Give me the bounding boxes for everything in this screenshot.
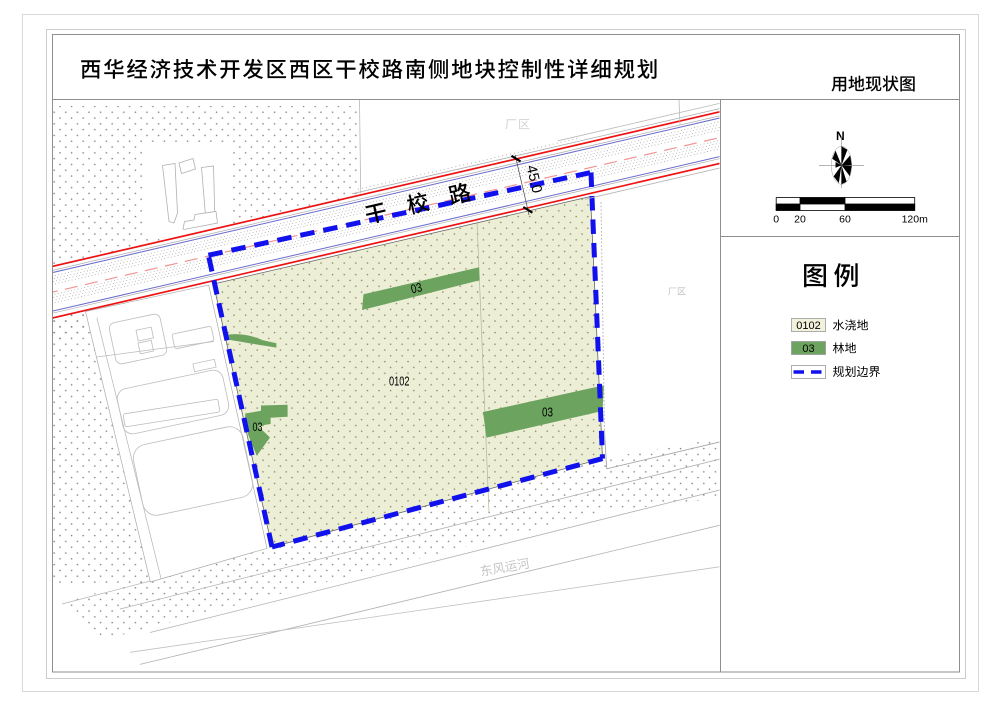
svg-text:03: 03 <box>542 406 553 420</box>
svg-text:03: 03 <box>253 422 263 434</box>
svg-text:120m: 120m <box>902 214 929 226</box>
svg-text:0102: 0102 <box>389 374 410 389</box>
svg-text:60: 60 <box>839 214 851 226</box>
svg-text:03: 03 <box>802 343 814 355</box>
svg-text:0: 0 <box>773 214 779 226</box>
svg-text:N: N <box>836 129 845 143</box>
svg-text:20: 20 <box>794 214 806 226</box>
svg-text:0102: 0102 <box>796 320 820 332</box>
